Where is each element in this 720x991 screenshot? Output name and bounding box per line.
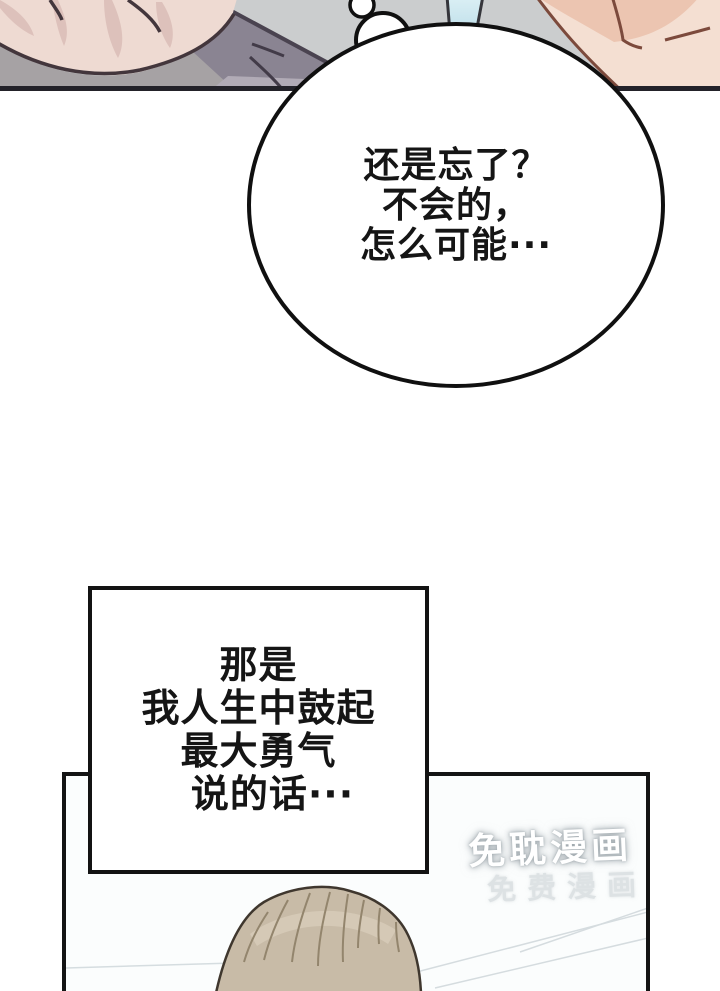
speech-bubble-text: 还是忘了？ 不会的， 怎么可能··· [256, 146, 656, 266]
narration-line: 我人生中鼓起 [92, 687, 425, 730]
comic-page: 还是忘了？ 不会的， 怎么可能··· 那是 我人生中鼓起 最大勇气 说的话···… [0, 0, 720, 991]
watermark-secondary: 免费漫画 [486, 861, 647, 909]
speech-line: 怎么可能··· [256, 226, 656, 266]
narration-line: 最大勇气 [92, 730, 425, 773]
speech-line: 不会的， [256, 186, 656, 226]
thought-dot [350, 0, 374, 17]
speech-line: 还是忘了？ [256, 146, 656, 186]
narration-line: 那是 [92, 644, 425, 687]
narration-box: 那是 我人生中鼓起 最大勇气 说的话··· [88, 586, 429, 874]
narration-line: 说的话··· [106, 773, 439, 816]
